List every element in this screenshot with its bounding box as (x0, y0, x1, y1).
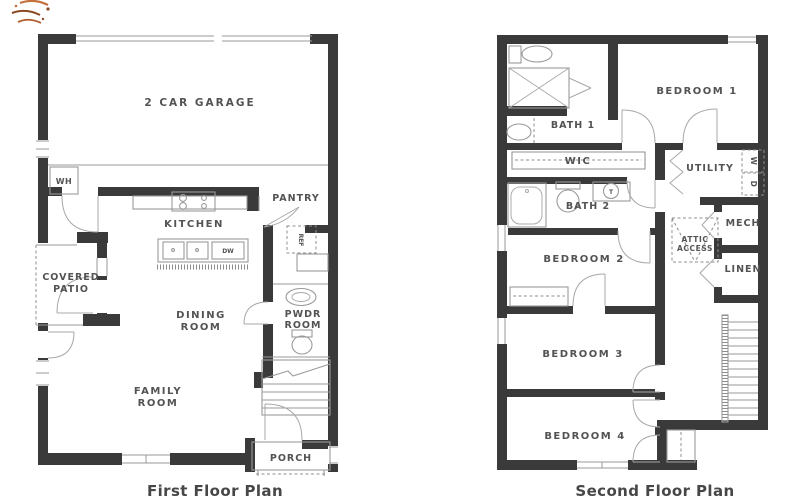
door-swing-hall (683, 109, 717, 143)
dishwasher-label: DW (222, 248, 234, 255)
window-left-lower (36, 360, 49, 386)
door-swing-closet-bedroom2 (573, 274, 605, 306)
door-swing-bath2 (627, 180, 655, 208)
second-floor-labels: BATH 1 BEDROOM 1 WIC UTILITY W D BATH 2 … (542, 86, 761, 442)
door-swing-powder-room (244, 302, 268, 324)
door-swing-bedroom1 (622, 110, 655, 143)
kitchen-island (157, 239, 249, 267)
window-patio-wall (96, 258, 108, 313)
door-swing-bedroom4 (633, 400, 660, 427)
dining-room-label-2: ROOM (181, 322, 222, 333)
family-room-label-1: FAMILY (134, 386, 182, 397)
shower-fixture-bath1 (509, 68, 591, 108)
second-floor-caption: Second Floor Plan (545, 482, 765, 500)
sink-fixture-bath1 (507, 118, 534, 143)
first-floor-plan: 2 CAR GARAGE WH KITCHEN PANTRY REF DW CO… (28, 28, 352, 484)
pantry-label: PANTRY (272, 193, 320, 204)
window-left-bedroom2 (496, 225, 508, 251)
door-swing-garage-entry (62, 196, 98, 232)
attic-access-label-1: ATTIC (682, 235, 709, 244)
bath2-label: BATH 2 (566, 201, 610, 212)
counter-below-ref (273, 254, 328, 284)
door-swing-side-entry (48, 332, 74, 358)
bifold-door-utility (670, 150, 683, 194)
dryer-label: D (749, 181, 758, 188)
door-opening-left-wall (37, 331, 49, 358)
water-heater-label: WH (56, 177, 73, 186)
bedroom4-label: BEDROOM 4 (544, 431, 625, 442)
chase-closet (667, 430, 695, 462)
washer-label: W (749, 157, 758, 166)
powder-room-label-1: PWDR (285, 309, 322, 320)
faucet-label: T (609, 189, 614, 196)
wic-label: WIC (565, 156, 592, 167)
door-swing-front-entry (265, 404, 302, 440)
dining-room-label-1: DINING (176, 310, 226, 321)
door-swing-bedroom4-lower (633, 435, 660, 462)
door-swing-bedroom3 (633, 365, 660, 392)
covered-patio-label-2: PATIO (53, 284, 89, 295)
bedroom2-label: BEDROOM 2 (543, 254, 624, 265)
utility-label: UTILITY (686, 163, 734, 174)
covered-patio-label-1: COVERED (42, 272, 99, 283)
bedroom3-label: BEDROOM 3 (542, 349, 623, 360)
window-left-bedroom3 (496, 318, 508, 344)
second-floor-plan: BATH 1 BEDROOM 1 WIC UTILITY W D BATH 2 … (486, 28, 782, 484)
mech-label: MECH (726, 218, 761, 229)
kitchen-label: KITCHEN (164, 219, 224, 230)
window-top-bedroom1 (728, 35, 756, 44)
kitchen-counter (133, 196, 247, 209)
window-left-upper (36, 140, 49, 158)
window-bottom-bedroom4 (577, 460, 628, 470)
bedroom1-label: BEDROOM 1 (656, 86, 737, 97)
toilet-fixture-bath1 (509, 46, 552, 63)
attic-access-label-2: ACCESS (677, 244, 713, 253)
window-bottom (122, 453, 170, 465)
porch-label: PORCH (270, 453, 312, 464)
bedroom2-closet (510, 287, 568, 306)
linen-label: LINEN (725, 264, 762, 275)
stairs-second-floor (722, 315, 758, 422)
first-floor-labels: 2 CAR GARAGE WH KITCHEN PANTRY REF DW CO… (42, 97, 321, 464)
floor-plan-sheet: 2 CAR GARAGE WH KITCHEN PANTRY REF DW CO… (0, 0, 800, 500)
second-floor-walls (497, 35, 768, 470)
refrigerator-label: REF (297, 234, 304, 247)
family-room-label-2: ROOM (138, 398, 179, 409)
bath1-label: BATH 1 (551, 120, 595, 131)
powder-room-label-2: ROOM (285, 320, 322, 331)
bathtub-fixture-bath2 (508, 183, 546, 227)
bifold-door-linen (700, 259, 714, 287)
first-floor-caption: First Floor Plan (110, 482, 320, 500)
garage-label: 2 CAR GARAGE (144, 97, 255, 109)
